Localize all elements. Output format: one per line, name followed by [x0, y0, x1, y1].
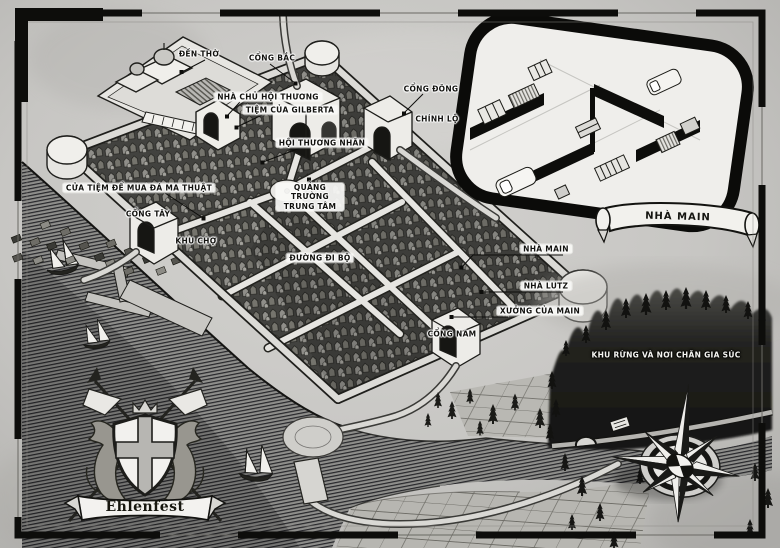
label-west-gate: CỔNG TÂY	[126, 209, 170, 218]
label-market: KHU CHỢ	[175, 236, 216, 245]
label-north-gate: CỔNG BẮC	[249, 53, 295, 62]
label-central-plaza: QUẢNG TRƯỜNG TRUNG TÂM	[276, 183, 344, 211]
label-east-gate: CỔNG ĐÔNG	[404, 84, 459, 93]
label-main-road: CHÍNH LỘ	[415, 114, 458, 123]
label-temple: ĐỀN THỜ	[179, 49, 219, 58]
label-guildmaster-house: NHÀ CHỦ HỘI THƯƠNG	[214, 92, 322, 101]
label-south-gate: CỔNG NAM	[428, 329, 477, 338]
label-lutz-house: NHÀ LUTZ	[521, 281, 572, 290]
label-magic-stone-shop: CỬA TIỆM ĐỂ MUA ĐÁ MA THUẬT	[63, 183, 215, 192]
map-illustration	[0, 0, 780, 548]
city-name-banner: Ehlenfest	[105, 499, 184, 515]
label-gilberta-shop: TIỆM CỦA GILBERTA	[243, 105, 338, 114]
inset-banner-title: NHÀ MAIN	[645, 211, 711, 224]
label-walking-street: ĐƯỜNG ĐI BỘ	[286, 253, 353, 262]
label-main-house: NHÀ MAIN	[520, 244, 572, 253]
label-forest: KHU RỪNG VÀ NƠI CHĂN GIA SÚC	[591, 350, 740, 359]
label-merchant-guild: HỘI THƯƠNG NHÂN	[276, 138, 368, 147]
label-main-workshop: XƯỞNG CỦA MAIN	[497, 306, 583, 315]
ehlenfest-map: ĐỀN THỜ CỔNG BẮC NHÀ CHỦ HỘI THƯƠNG TIỆM…	[0, 0, 780, 548]
